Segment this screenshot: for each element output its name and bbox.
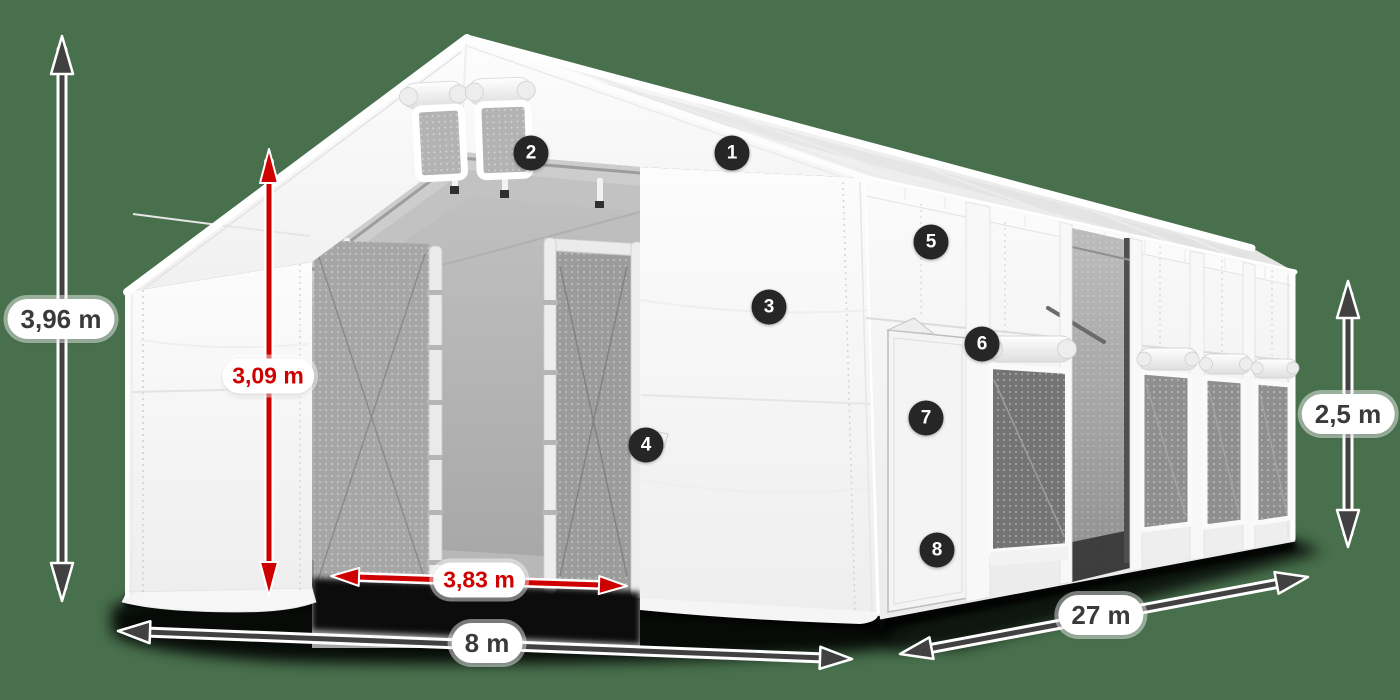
side-height-label: 2,5 m xyxy=(1302,394,1395,434)
inner-door-width-label: 3,83 m xyxy=(433,563,525,598)
inner-height-label: 3,09 m xyxy=(222,359,314,394)
callout-badge-7[interactable]: 7 xyxy=(909,401,944,436)
callout-badge-6[interactable]: 6 xyxy=(965,327,1000,362)
callout-badge-4[interactable]: 4 xyxy=(629,428,664,463)
width-label: 8 m xyxy=(452,623,523,663)
callout-badge-2[interactable]: 2 xyxy=(514,136,549,171)
callout-badge-3[interactable]: 3 xyxy=(752,290,787,325)
tent-dimensions-diagram: 3,96 m 3,09 m 3,83 m 8 m 27 m 2,5 m 1 2 … xyxy=(0,0,1400,700)
front-left-panel xyxy=(122,262,316,612)
front-right-panel xyxy=(640,167,881,624)
callout-badge-1[interactable]: 1 xyxy=(715,136,750,171)
length-label: 27 m xyxy=(1058,595,1143,635)
left-mesh-door xyxy=(314,240,443,596)
side-door-panel xyxy=(888,318,968,612)
inner-portal xyxy=(542,238,643,598)
callout-badge-8[interactable]: 8 xyxy=(920,533,955,568)
tent-illustration xyxy=(0,0,1400,700)
total-height-label: 3,96 m xyxy=(8,299,115,339)
callout-badge-5[interactable]: 5 xyxy=(914,225,949,260)
